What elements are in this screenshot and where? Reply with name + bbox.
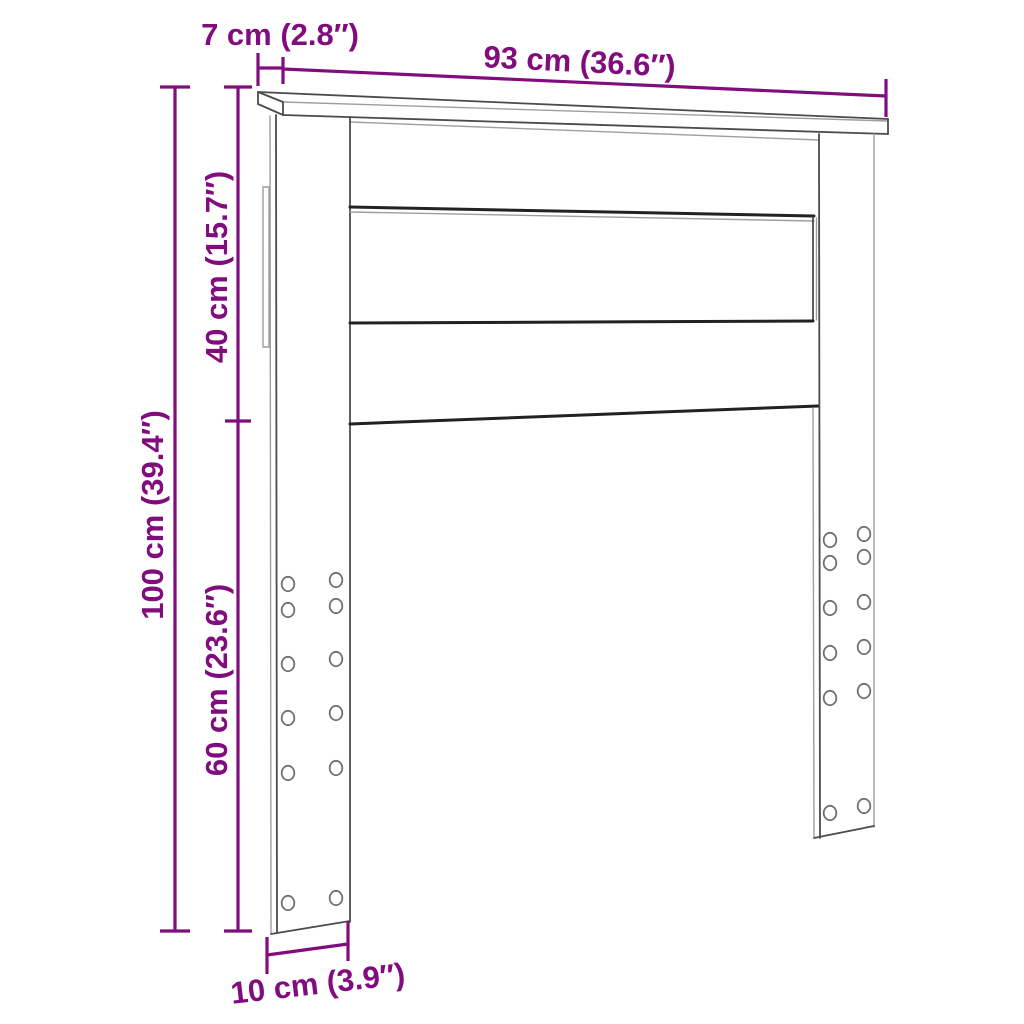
dimension-annotations: 7 cm (2.8″) 93 cm (36.6″) 100 cm (39.4″)… bbox=[135, 17, 886, 1011]
screw-hole bbox=[282, 766, 295, 780]
screw-hole bbox=[282, 657, 295, 671]
middle-board-left-end-strip bbox=[263, 187, 269, 347]
screw-hole bbox=[282, 896, 295, 910]
screw-hole bbox=[282, 603, 295, 617]
screw-hole bbox=[824, 646, 837, 660]
headboard-outline bbox=[258, 92, 888, 934]
cap-back-top-edge bbox=[258, 92, 888, 119]
dim-total-height: 100 cm (39.4″) bbox=[135, 87, 190, 931]
board-gap-line-1 bbox=[350, 207, 814, 216]
cap-left-end-face bbox=[258, 92, 283, 115]
dim-leg-width: 10 cm (3.9″) bbox=[229, 921, 407, 1011]
right-leg-inner-edge bbox=[819, 134, 820, 838]
screw-hole bbox=[858, 799, 871, 813]
screw-hole bbox=[858, 595, 871, 609]
screw-hole bbox=[824, 533, 837, 547]
screw-hole bbox=[824, 556, 837, 570]
dim-top-depth-lines bbox=[258, 53, 283, 86]
dim-top-depth-label: 7 cm (2.8″) bbox=[201, 17, 359, 52]
screw-hole bbox=[330, 761, 343, 775]
screw-hole bbox=[824, 601, 837, 615]
screw-hole bbox=[282, 711, 295, 725]
board-gap-line-2 bbox=[350, 321, 813, 323]
headboard-dimension-drawing: 7 cm (2.8″) 93 cm (36.6″) 100 cm (39.4″)… bbox=[0, 0, 1024, 1024]
right-leg-bottom-edge bbox=[814, 826, 874, 838]
left-leg-front-left-edge bbox=[276, 115, 277, 933]
dim-upper-panel-height-label: 40 cm (15.7″) bbox=[199, 171, 234, 363]
dim-leg-width-label: 10 cm (3.9″) bbox=[229, 956, 407, 1011]
screw-hole bbox=[330, 706, 343, 720]
screw-hole bbox=[330, 652, 343, 666]
screw-hole bbox=[330, 599, 343, 613]
dim-top-depth: 7 cm (2.8″) bbox=[201, 17, 359, 86]
screw-hole bbox=[824, 806, 837, 820]
dim-panel-and-leg-height: 40 cm (15.7″) 60 cm (23.6″) bbox=[199, 87, 252, 931]
dim-width-label: 93 cm (36.6″) bbox=[483, 39, 677, 83]
left-leg-outer-side-edge bbox=[270, 116, 271, 934]
screw-hole bbox=[858, 550, 871, 564]
screw-hole bbox=[824, 691, 837, 705]
screw-hole bbox=[282, 577, 295, 591]
left-leg bbox=[270, 115, 350, 934]
screw-hole bbox=[330, 573, 343, 587]
dim-total-height-label: 100 cm (39.4″) bbox=[135, 410, 170, 620]
right-leg bbox=[813, 134, 874, 838]
screw-hole bbox=[858, 640, 871, 654]
panel-bottom-edge bbox=[350, 406, 818, 424]
top-cap-board bbox=[258, 92, 888, 140]
right-leg-side-sliver-edge bbox=[813, 408, 814, 838]
screw-holes-right-leg bbox=[824, 527, 871, 820]
screw-hole bbox=[858, 527, 871, 541]
screw-hole bbox=[330, 891, 343, 905]
dimension-diagram: 7 cm (2.8″) 93 cm (36.6″) 100 cm (39.4″)… bbox=[0, 0, 1024, 1024]
screw-holes-left-leg bbox=[282, 573, 343, 910]
left-leg-bottom-edge bbox=[271, 921, 350, 934]
panel-boards bbox=[350, 207, 818, 424]
dim-leg-height-label: 60 cm (23.6″) bbox=[199, 584, 234, 776]
screw-hole bbox=[858, 684, 871, 698]
